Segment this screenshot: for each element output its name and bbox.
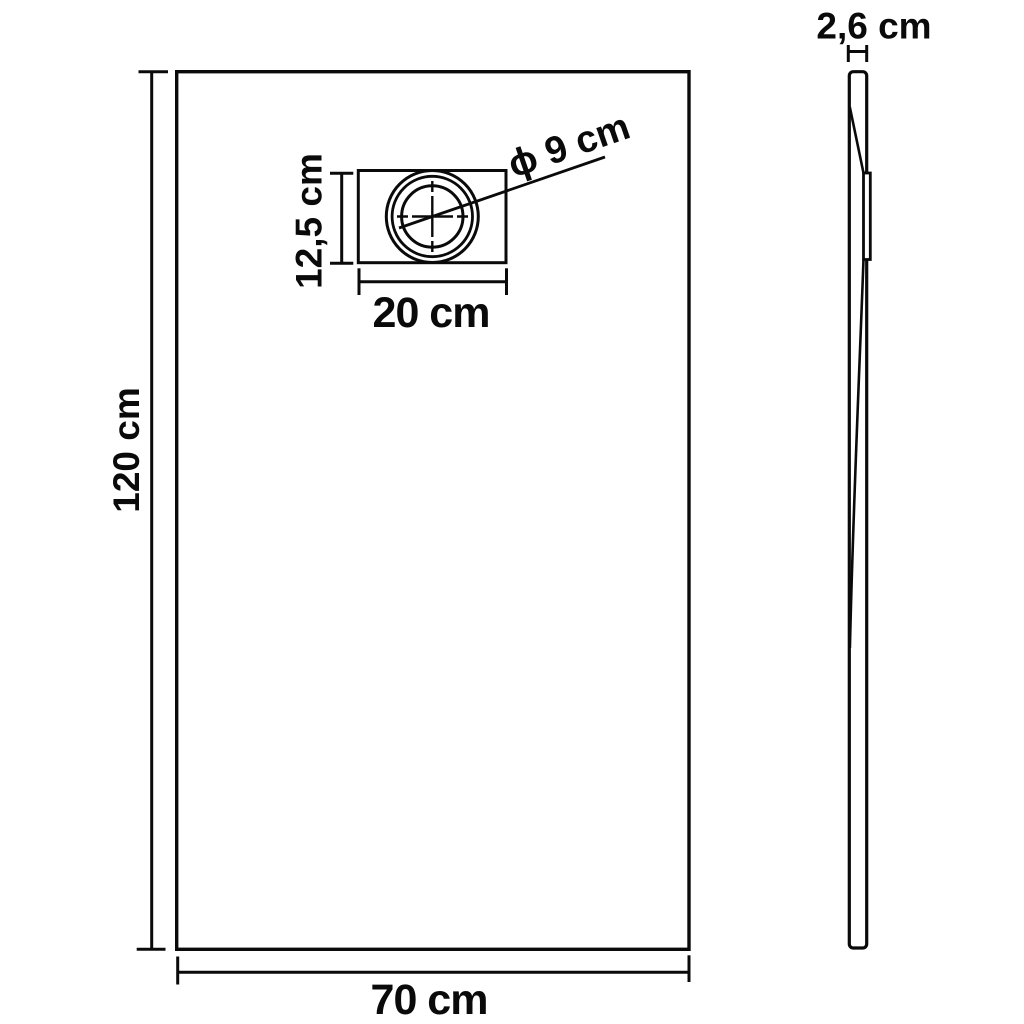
drain-height-label: 12,5 cm [289,153,330,289]
dimension-side-thickness: 2,6 cm [816,6,931,63]
drain-width-label: 20 cm [373,289,490,337]
side-thickness-label: 2,6 cm [816,6,931,47]
front-view: ϕ 9 cm 12,5 cm 20 cm 120 cm [106,72,689,1024]
shower-tray-dimension-diagram: ϕ 9 cm 12,5 cm 20 cm 120 cm [0,0,1024,1024]
tray-height-label: 120 cm [106,387,147,513]
dimension-tray-width: 70 cm [178,955,689,1024]
dimension-tray-height: 120 cm [106,72,168,950]
tray-width-label: 70 cm [371,976,488,1024]
side-view: 2,6 cm [816,6,931,949]
side-drain-bump [864,173,871,260]
